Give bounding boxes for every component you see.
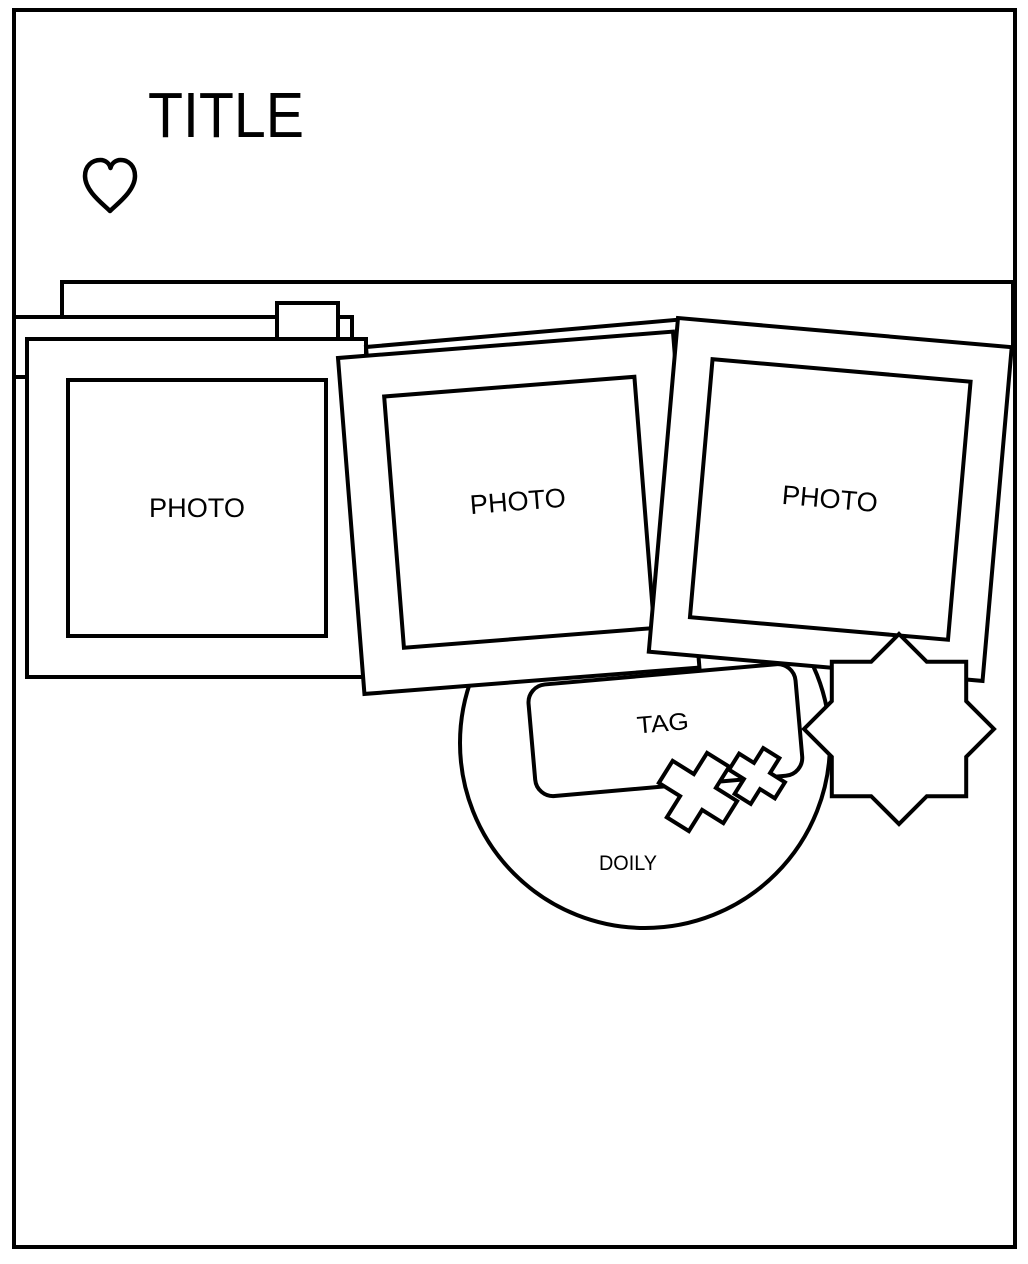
- eight-point-star-icon: [804, 634, 994, 824]
- file-tab: [277, 303, 338, 341]
- scrapbook-sketch-page: TITLE DOILY TAG PHOTO PHOTO PHOTO: [0, 0, 1028, 1264]
- photo-frame-right: PHOTO: [649, 318, 1012, 681]
- tag-label: TAG: [636, 708, 690, 739]
- photo-frame-left: PHOTO: [27, 339, 366, 677]
- photo-frame-middle: PHOTO: [338, 332, 699, 694]
- doily-label: DOILY: [599, 852, 657, 875]
- page-title: TITLE: [148, 79, 304, 151]
- photo-left-label: PHOTO: [149, 493, 245, 523]
